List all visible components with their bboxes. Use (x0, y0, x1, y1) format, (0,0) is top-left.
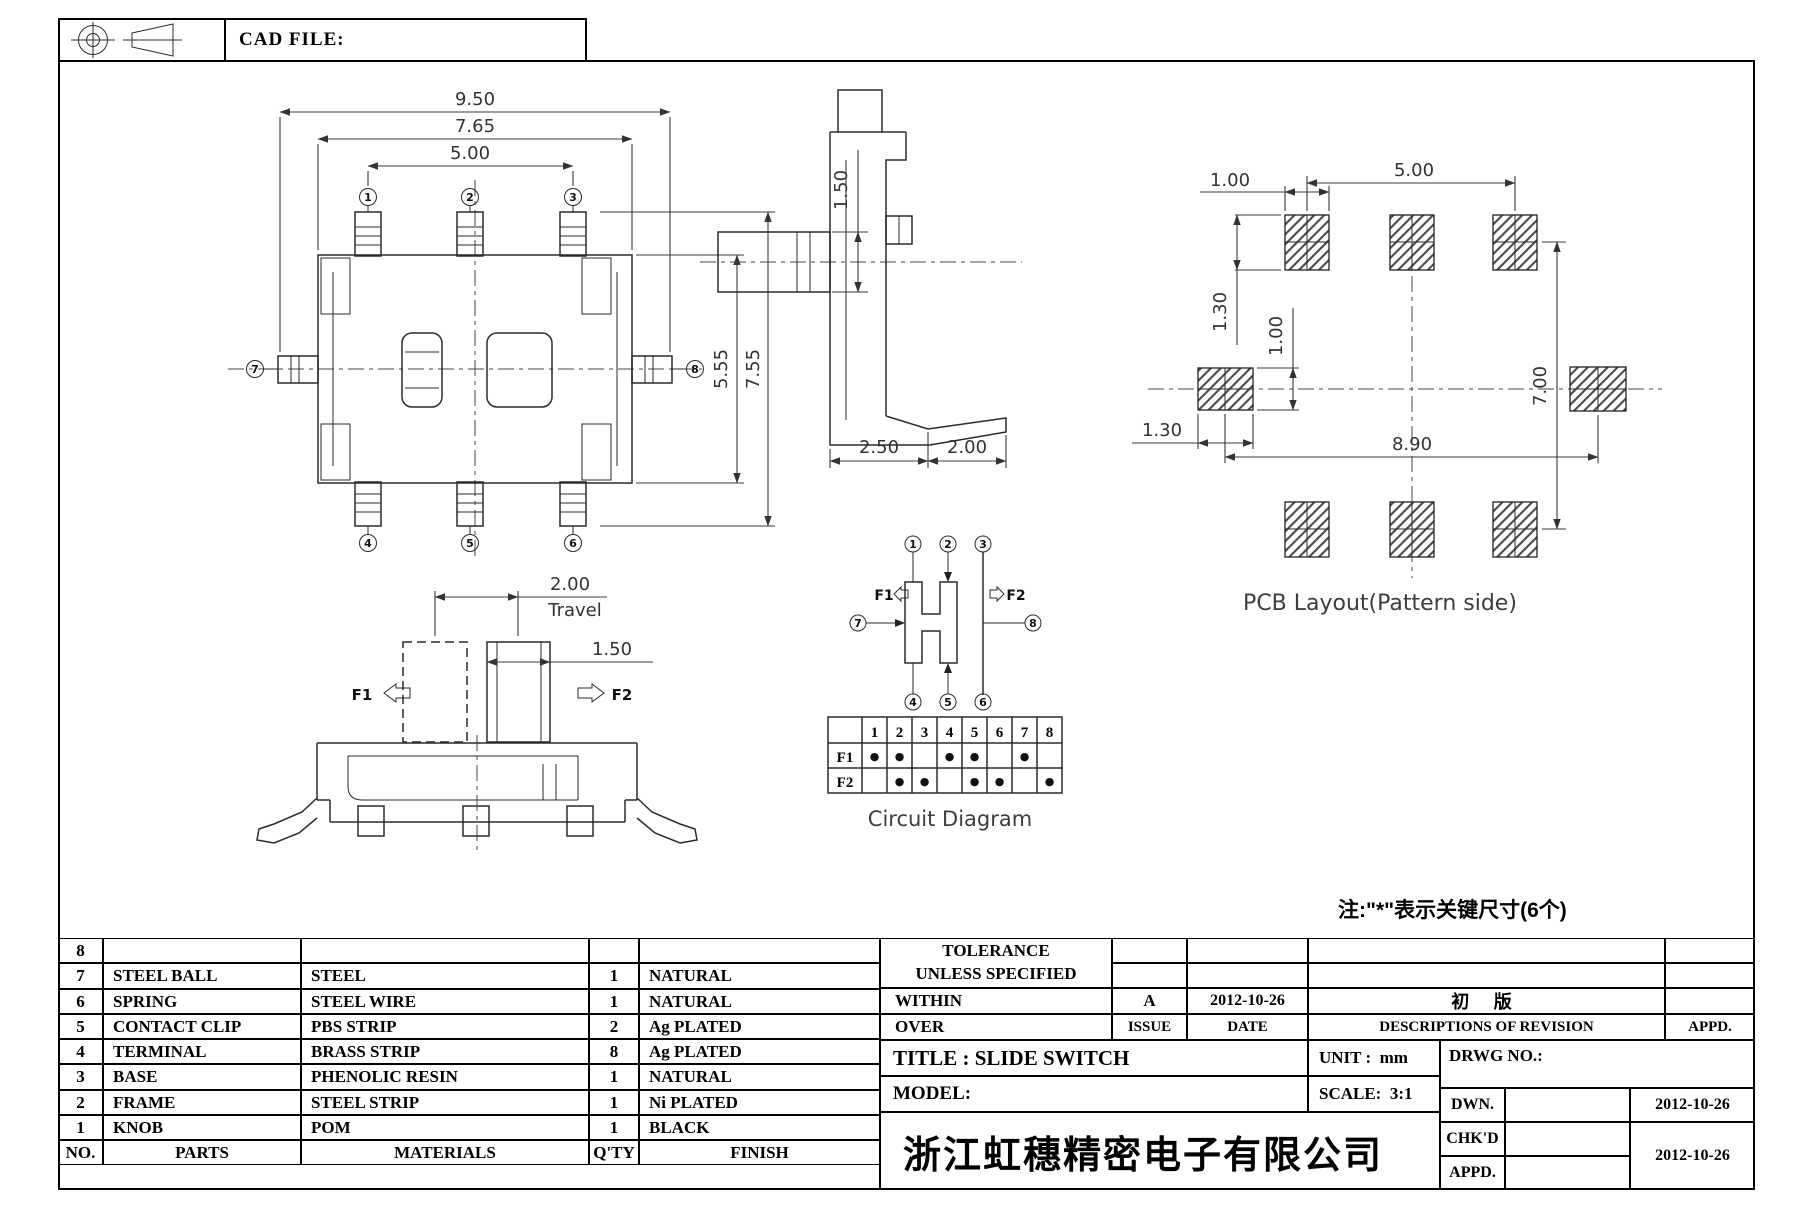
parts-material: BRASS STRIP (301, 1039, 589, 1064)
knob-window-right (487, 333, 552, 407)
revision-empty-cell (1187, 963, 1308, 988)
parts-qty: 1 (589, 1064, 639, 1090)
revision-empty-cell (1665, 963, 1755, 988)
parts-finish: NATURAL (639, 963, 880, 989)
dim-knob-height: 1.50 (831, 170, 852, 210)
cad-file-box: CAD FILE: (58, 18, 587, 62)
revision-header: DESCRIPTIONS OF REVISION (1308, 1014, 1665, 1040)
col-8: 8 (1046, 725, 1054, 741)
parts-no: 3 (58, 1064, 103, 1090)
issue-date: 2012-10-26 (1187, 988, 1308, 1014)
parts-no: 6 (58, 989, 103, 1014)
circuit-pin-3: 3 (979, 538, 987, 551)
parts-header-parts: PARTS (103, 1140, 301, 1165)
unit-value: mm (1380, 1048, 1408, 1068)
company-name: 浙江虹穗精密电子有限公司 (880, 1112, 1440, 1190)
f1-force-label: F1 (352, 686, 373, 704)
circuit-caption: Circuit Diagram (868, 807, 1032, 831)
side-view-drawing: 1.50 2.50 2.00 (690, 80, 1030, 470)
projection-angle-icon (60, 20, 224, 60)
dim-pad-width: 1.00 (1210, 170, 1250, 191)
col-3: 3 (921, 725, 929, 741)
revision-empty-cell (1112, 963, 1187, 988)
tolerance-line1: TOLERANCE (942, 940, 1049, 963)
parts-no: 8 (58, 938, 103, 963)
circuit-f2-label: F2 (1006, 588, 1025, 604)
parts-name: CONTACT CLIP (103, 1014, 301, 1039)
circuit-f1-arrow-icon (894, 587, 908, 601)
top-terminals (355, 212, 586, 256)
parts-name (103, 938, 301, 963)
within-label: WITHIN (880, 988, 1112, 1014)
parts-header-qty: Q'TY (589, 1140, 639, 1165)
pin-7: 7 (251, 363, 259, 376)
f2-arrow-icon (578, 684, 604, 702)
col-1: 1 (871, 725, 879, 741)
dim-overall-width: 9.50 (455, 89, 495, 110)
row-f1-label: F1 (837, 750, 854, 766)
solder-pads (1198, 215, 1626, 557)
chkd-signature-cell (1505, 1122, 1630, 1156)
dim-body-width: 2.50 (859, 437, 899, 458)
key-dimension-note: 注:"*"表示关键尺寸(6个) (1338, 894, 1567, 924)
pin-2: 2 (466, 191, 474, 204)
bottom-terminals (355, 482, 586, 526)
parts-name: BASE (103, 1064, 301, 1090)
circuit-pin-8: 8 (1029, 617, 1037, 630)
parts-material (301, 938, 589, 963)
col-4: 4 (946, 725, 954, 741)
model-cell: MODEL: (880, 1076, 1308, 1112)
appd-header: APPD. (1665, 1014, 1755, 1040)
circuit-pin-4: 4 (909, 696, 917, 709)
chkd-label: CHK'D (1440, 1122, 1505, 1156)
date-header: DATE (1187, 1014, 1308, 1040)
pin-1: 1 (364, 191, 372, 204)
parts-material: STEEL (301, 963, 589, 989)
drwg-no-cell: DRWG NO.: (1440, 1040, 1755, 1088)
issue-header: ISSUE (1112, 1014, 1187, 1040)
dim-pad-span: 8.90 (1392, 434, 1432, 455)
tolerance-cell: TOLERANCE UNLESS SPECIFIED (880, 938, 1112, 988)
scale-value: 3:1 (1390, 1084, 1413, 1104)
dim-knob-width: 1.50 (592, 639, 632, 660)
unit-cell: UNIT : mm (1308, 1040, 1440, 1076)
f2-force-label: F2 (612, 686, 633, 704)
svg-text:●: ● (970, 750, 980, 763)
parts-qty: 1 (589, 1090, 639, 1115)
pin-4: 4 (364, 537, 372, 550)
parts-finish: Ag PLATED (639, 1014, 880, 1039)
unit-label: UNIT : (1319, 1048, 1371, 1068)
circuit-f2-arrow-icon (990, 587, 1004, 601)
parts-material: POM (301, 1115, 589, 1140)
parts-no: 2 (58, 1090, 103, 1115)
circuit-pin-1: 1 (909, 538, 917, 551)
dim-travel: 2.00 (550, 574, 590, 595)
dim-side-pad-width: 1.30 (1142, 420, 1182, 441)
scale-cell: SCALE: 3:1 (1308, 1076, 1440, 1112)
revision-empty-cell (1308, 938, 1665, 963)
revision-empty-cell (1308, 963, 1665, 988)
scale-label: SCALE: (1319, 1084, 1381, 1104)
revision-empty-cell (1112, 938, 1187, 963)
row-f2-label: F2 (837, 775, 854, 791)
cad-file-label: CAD FILE: (226, 20, 585, 60)
pcb-layout-caption: PCB Layout(Pattern side) (1243, 591, 1517, 616)
dim-side-pad-height: 1.00 (1266, 316, 1287, 356)
parts-name: STEEL BALL (103, 963, 301, 989)
parts-finish: BLACK (639, 1115, 880, 1140)
dwn-date: 2012-10-26 (1630, 1088, 1755, 1122)
svg-text:●: ● (995, 775, 1005, 788)
parts-finish: NATURAL (639, 1064, 880, 1090)
pin-3: 3 (569, 191, 577, 204)
parts-table-bottom-strip (58, 1165, 880, 1190)
side-top-tab (838, 90, 882, 132)
svg-text:●: ● (895, 775, 905, 788)
parts-name: TERMINAL (103, 1039, 301, 1064)
parts-qty (589, 938, 639, 963)
col-6: 6 (996, 725, 1004, 741)
revision-description: 初 版 (1308, 988, 1665, 1014)
dim-row-pitch: 7.00 (1530, 366, 1551, 406)
parts-qty: 2 (589, 1014, 639, 1039)
dim-pad-height: 1.30 (1210, 292, 1231, 332)
parts-no: 7 (58, 963, 103, 989)
pin-5: 5 (466, 537, 474, 550)
dim-terminal-ext: 2.00 (947, 437, 987, 458)
contact-h-symbol (905, 582, 957, 663)
col-5: 5 (971, 725, 979, 741)
dim-pin-pitch: 5.00 (450, 143, 490, 164)
tolerance-line2: UNLESS SPECIFIED (915, 963, 1076, 986)
parts-finish (639, 938, 880, 963)
parts-qty: 8 (589, 1039, 639, 1064)
circuit-pin-7: 7 (854, 617, 862, 630)
parts-qty: 1 (589, 963, 639, 989)
side-foot (830, 132, 1006, 445)
front-base (257, 735, 697, 852)
circuit-pin-5: 5 (944, 696, 952, 709)
knob-window-left (402, 333, 442, 407)
svg-text:●: ● (945, 750, 955, 763)
col-2: 2 (896, 725, 904, 741)
circuit-pin-2: 2 (944, 538, 952, 551)
parts-no: 5 (58, 1014, 103, 1039)
parts-header-materials: MATERIALS (301, 1140, 589, 1165)
svg-text:●: ● (870, 750, 880, 763)
parts-finish: NATURAL (639, 989, 880, 1014)
knob-ghost-position (403, 642, 467, 742)
pin-6: 6 (569, 537, 577, 550)
parts-material: PHENOLIC RESIN (301, 1064, 589, 1090)
appd-label: APPD. (1440, 1156, 1505, 1190)
revision-empty-cell (1187, 938, 1308, 963)
approval-date: 2012-10-26 (1630, 1122, 1755, 1190)
revision-appd-cell (1665, 988, 1755, 1014)
parts-qty: 1 (589, 989, 639, 1014)
over-label: OVER (880, 1014, 1112, 1040)
parts-finish: Ni PLATED (639, 1090, 880, 1115)
svg-text:●: ● (970, 775, 980, 788)
projection-symbols (60, 20, 226, 60)
svg-text:●: ● (1045, 775, 1055, 788)
appd-signature-cell (1505, 1156, 1630, 1190)
drawing-title: TITLE : SLIDE SWITCH (880, 1040, 1308, 1076)
circuit-diagram: 1 2 3 4 5 6 7 8 F1 F2 1 2 3 4 5 6 7 8 F1… (820, 505, 1090, 835)
parts-name: FRAME (103, 1090, 301, 1115)
dwn-label: DWN. (1440, 1088, 1505, 1122)
svg-text:●: ● (920, 775, 930, 788)
dim-pad-pitch: 5.00 (1394, 160, 1434, 181)
travel-label: Travel (547, 600, 602, 621)
revision-empty-cell (1665, 938, 1755, 963)
parts-material: STEEL STRIP (301, 1090, 589, 1115)
parts-header-no: NO. (58, 1140, 103, 1165)
col-7: 7 (1021, 725, 1029, 741)
pcb-layout-drawing: 1.00 5.00 1.30 1.00 1.30 8.90 7.00 PCB L… (1030, 140, 1710, 630)
parts-material: STEEL WIRE (301, 989, 589, 1014)
parts-finish: Ag PLATED (639, 1039, 880, 1064)
circuit-truth-table: 1 2 3 4 5 6 7 8 F1 F2 ●●●●● ●●●●● (828, 717, 1062, 793)
parts-no: 1 (58, 1115, 103, 1140)
parts-name: KNOB (103, 1115, 301, 1140)
svg-text:●: ● (895, 750, 905, 763)
svg-text:●: ● (1020, 750, 1030, 763)
drawing-sheet: CAD FILE: (0, 0, 1811, 1207)
travel-view-drawing: 2.00 Travel 1.50 F1 F2 (240, 555, 700, 865)
parts-material: PBS STRIP (301, 1014, 589, 1039)
circuit-f1-label: F1 (874, 588, 893, 604)
parts-no: 4 (58, 1039, 103, 1064)
parts-name: SPRING (103, 989, 301, 1014)
parts-qty: 1 (589, 1115, 639, 1140)
issue-value: A (1112, 988, 1187, 1014)
dwn-signature-cell (1505, 1088, 1630, 1122)
dim-frame-width: 7.65 (455, 116, 495, 137)
circuit-pin-6: 6 (979, 696, 987, 709)
f1-arrow-icon (384, 684, 410, 702)
parts-header-finish: FINISH (639, 1140, 880, 1165)
